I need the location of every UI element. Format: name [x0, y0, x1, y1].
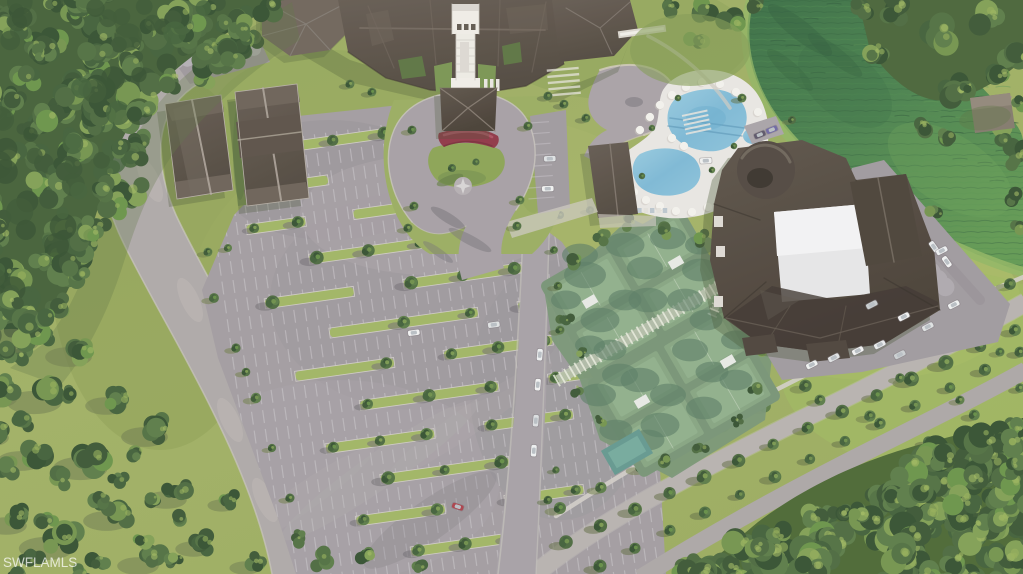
svg-text:SWFLAMLS: SWFLAMLS — [3, 555, 77, 570]
